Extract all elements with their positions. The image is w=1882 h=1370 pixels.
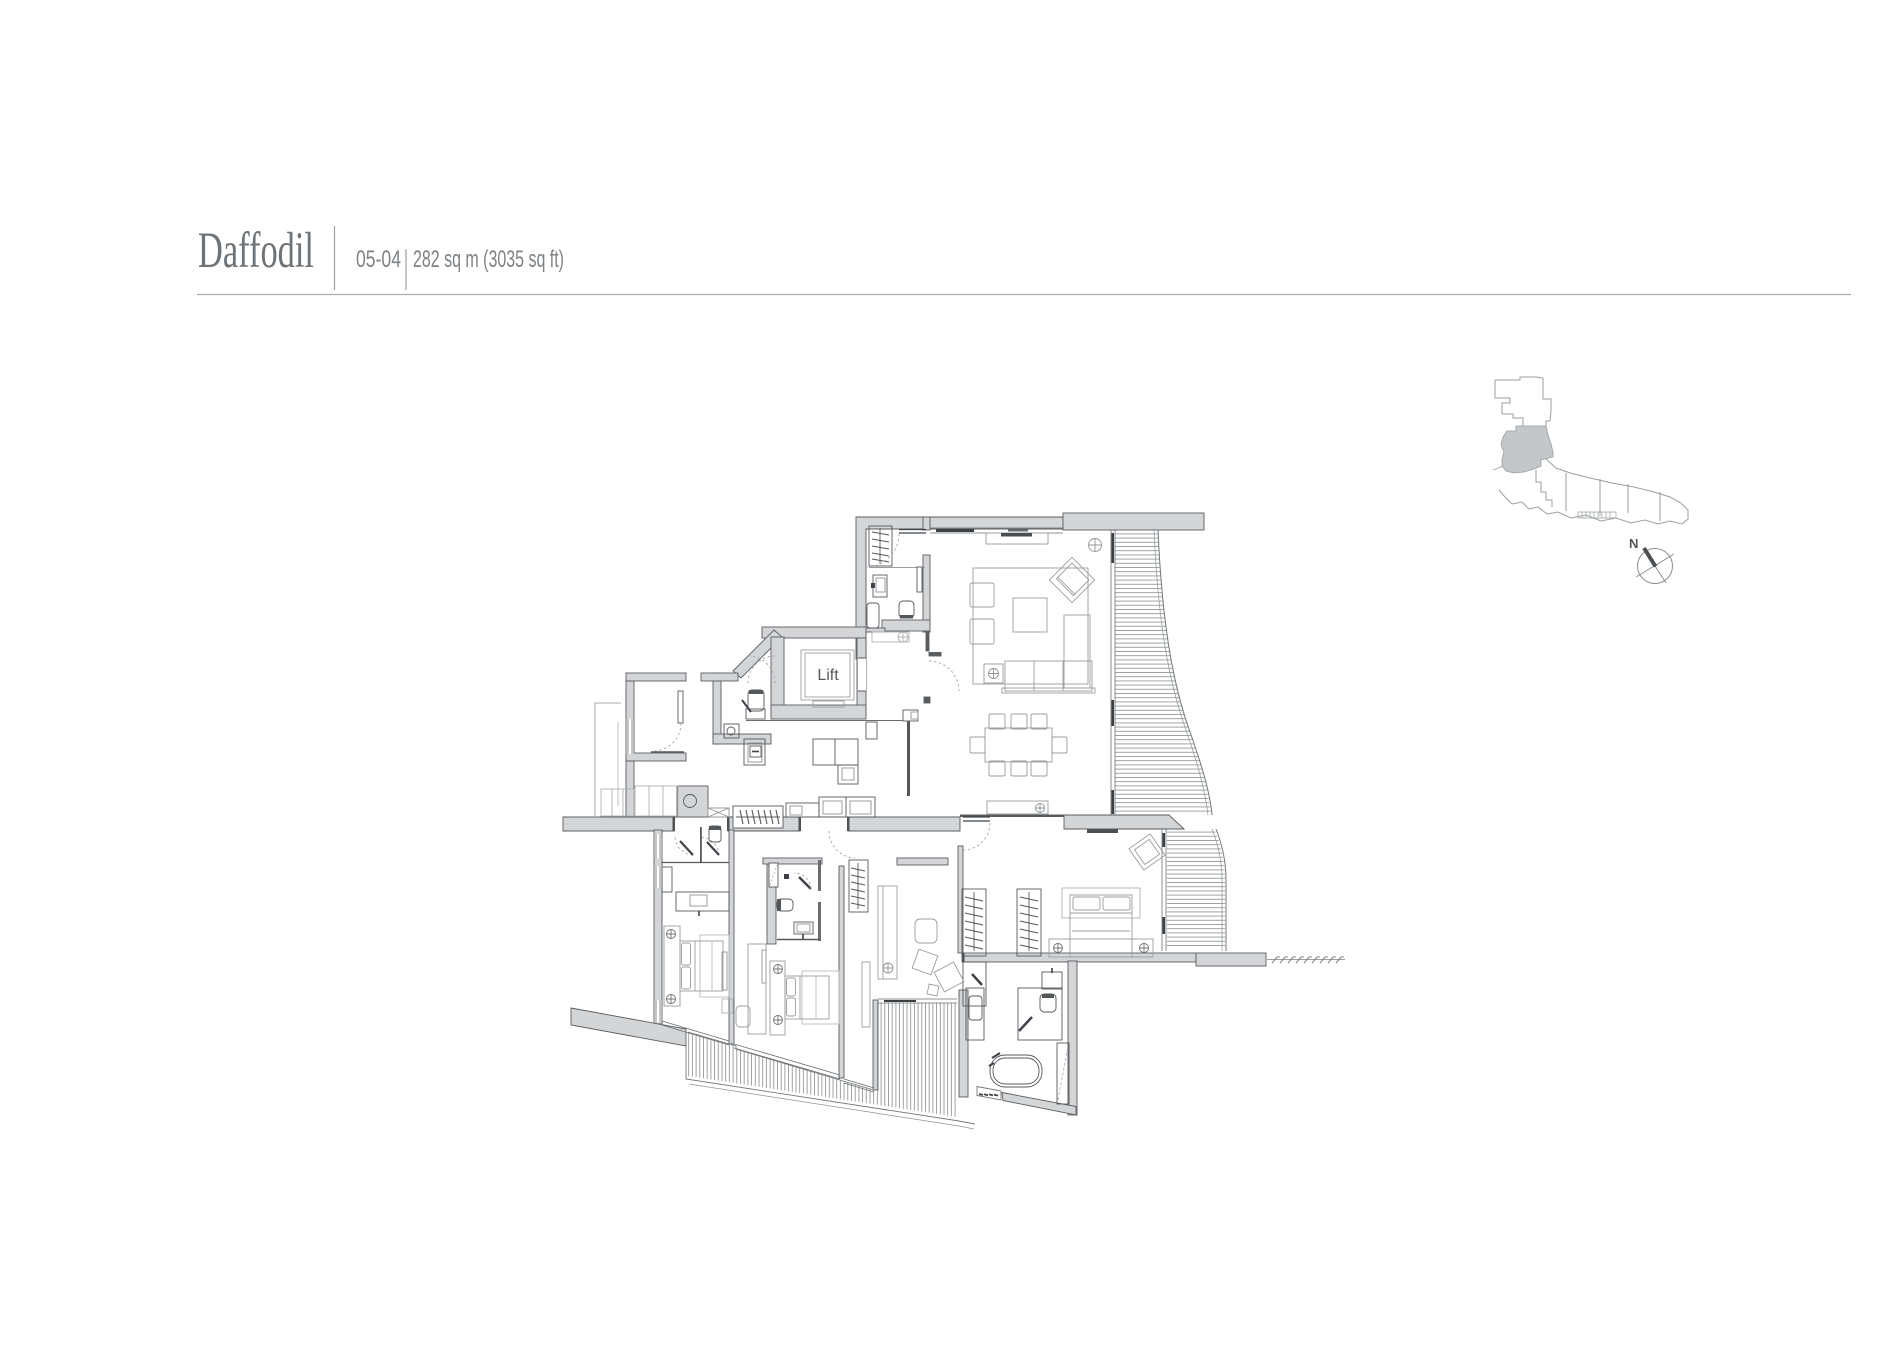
svg-text:N: N (1629, 536, 1638, 551)
svg-text:Lift: Lift (817, 667, 839, 684)
svg-text:Daffodil: Daffodil (198, 223, 314, 279)
svg-text:282 sq m (3035 sq ft): 282 sq m (3035 sq ft) (413, 246, 564, 273)
svg-text:05-04: 05-04 (356, 246, 401, 273)
